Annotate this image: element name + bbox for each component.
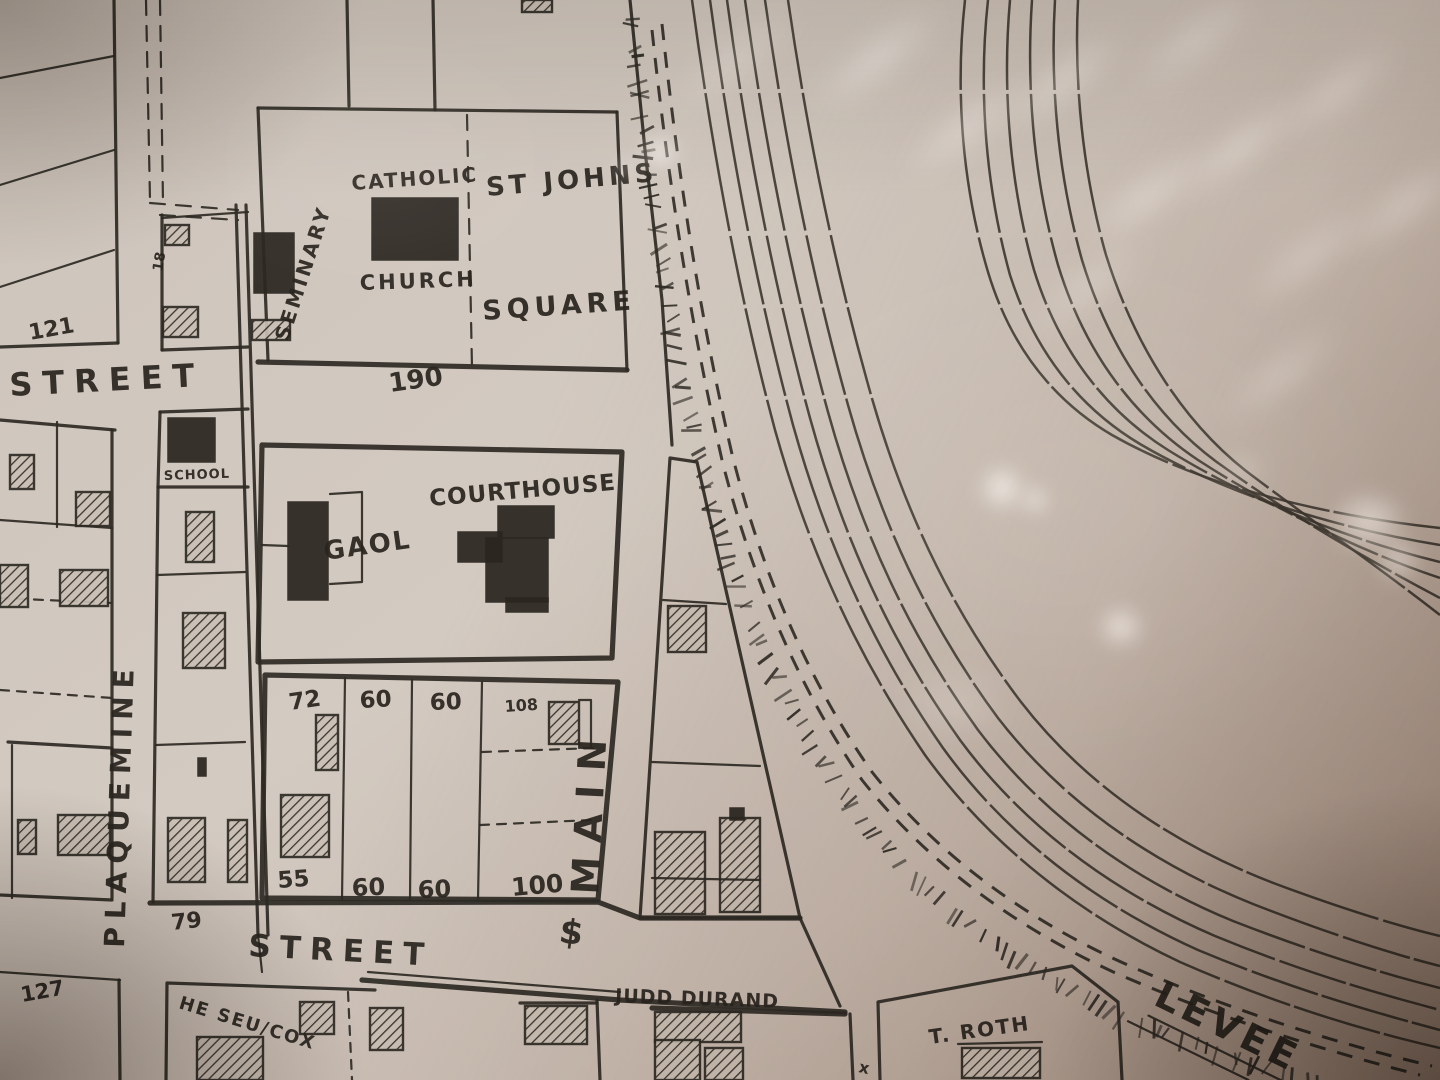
lot-number-79: 79 xyxy=(170,908,203,936)
building xyxy=(730,808,744,820)
building xyxy=(316,715,338,770)
building xyxy=(163,307,198,337)
building xyxy=(655,832,705,914)
lot-number: 60 xyxy=(429,689,462,716)
building xyxy=(183,613,225,668)
building xyxy=(522,0,552,12)
gaol-building xyxy=(288,502,328,600)
building xyxy=(76,492,110,526)
building xyxy=(0,565,28,607)
building xyxy=(18,820,36,854)
building xyxy=(655,1040,700,1080)
school-label: SCHOOL xyxy=(164,467,231,484)
building xyxy=(668,606,706,652)
lot-number: 55 xyxy=(277,866,311,894)
lot-number: 60 xyxy=(417,875,451,904)
building xyxy=(525,1006,587,1044)
building xyxy=(370,1008,403,1050)
school-building xyxy=(168,418,215,462)
building xyxy=(962,1048,1040,1078)
building xyxy=(197,1037,263,1080)
lot-number: 60 xyxy=(359,686,392,714)
building xyxy=(228,820,247,882)
lot-number: 100 xyxy=(510,869,565,902)
lot-number: 72 xyxy=(287,686,322,716)
building xyxy=(60,570,108,606)
building xyxy=(168,818,205,882)
building xyxy=(705,1048,743,1080)
building xyxy=(165,225,189,245)
lot-number-18: 18 xyxy=(150,251,169,273)
street-name-main: MAIN xyxy=(563,724,616,895)
catholic-church-building xyxy=(372,198,458,260)
building xyxy=(300,1002,334,1034)
church-label: CHURCH xyxy=(359,267,477,295)
framed-map-photo: 121 STREET 18 SCHOOL xyxy=(0,0,1440,1080)
building xyxy=(655,1012,741,1042)
lot-number: 108 xyxy=(504,695,539,716)
building xyxy=(720,818,760,912)
town-plat-map: 121 STREET 18 SCHOOL xyxy=(0,0,1440,1080)
building xyxy=(198,758,206,776)
building xyxy=(10,455,34,489)
lot-number: 60 xyxy=(351,873,385,902)
building xyxy=(186,512,214,562)
building xyxy=(281,795,329,857)
